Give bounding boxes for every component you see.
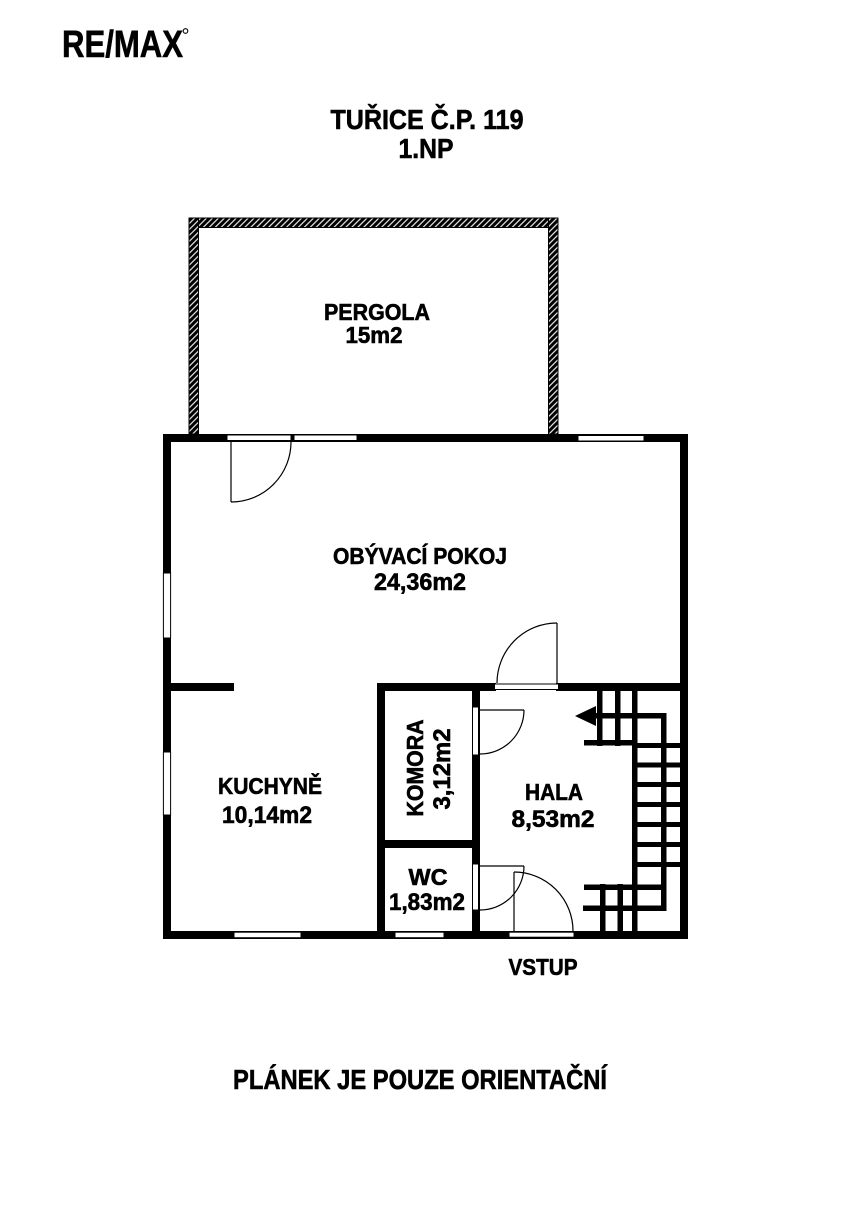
svg-text:1,83m2: 1,83m2 [389, 889, 465, 916]
svg-text:OBÝVACÍ POKOJ: OBÝVACÍ POKOJ [333, 542, 507, 569]
svg-text:3,12m2: 3,12m2 [429, 729, 456, 810]
svg-text:PLÁNEK JE POUZE ORIENTAČNÍ: PLÁNEK JE POUZE ORIENTAČNÍ [233, 1063, 608, 1095]
svg-text:15m2: 15m2 [346, 322, 403, 348]
svg-text:WC: WC [409, 864, 448, 890]
svg-text:1.NP: 1.NP [399, 133, 454, 164]
svg-text:8,53m2: 8,53m2 [512, 806, 595, 833]
svg-text:VSTUP: VSTUP [509, 954, 578, 980]
svg-text:KOMORA: KOMORA [402, 720, 428, 817]
svg-text:RE/MAX: RE/MAX [62, 24, 184, 66]
svg-text:10,14m2: 10,14m2 [222, 802, 312, 829]
svg-text:HALA: HALA [525, 779, 583, 805]
svg-text:KUCHYNĚ: KUCHYNĚ [218, 772, 322, 799]
svg-text:TUŘICE Č.P. 119: TUŘICE Č.P. 119 [331, 103, 524, 135]
svg-text:24,36m2: 24,36m2 [374, 569, 466, 596]
